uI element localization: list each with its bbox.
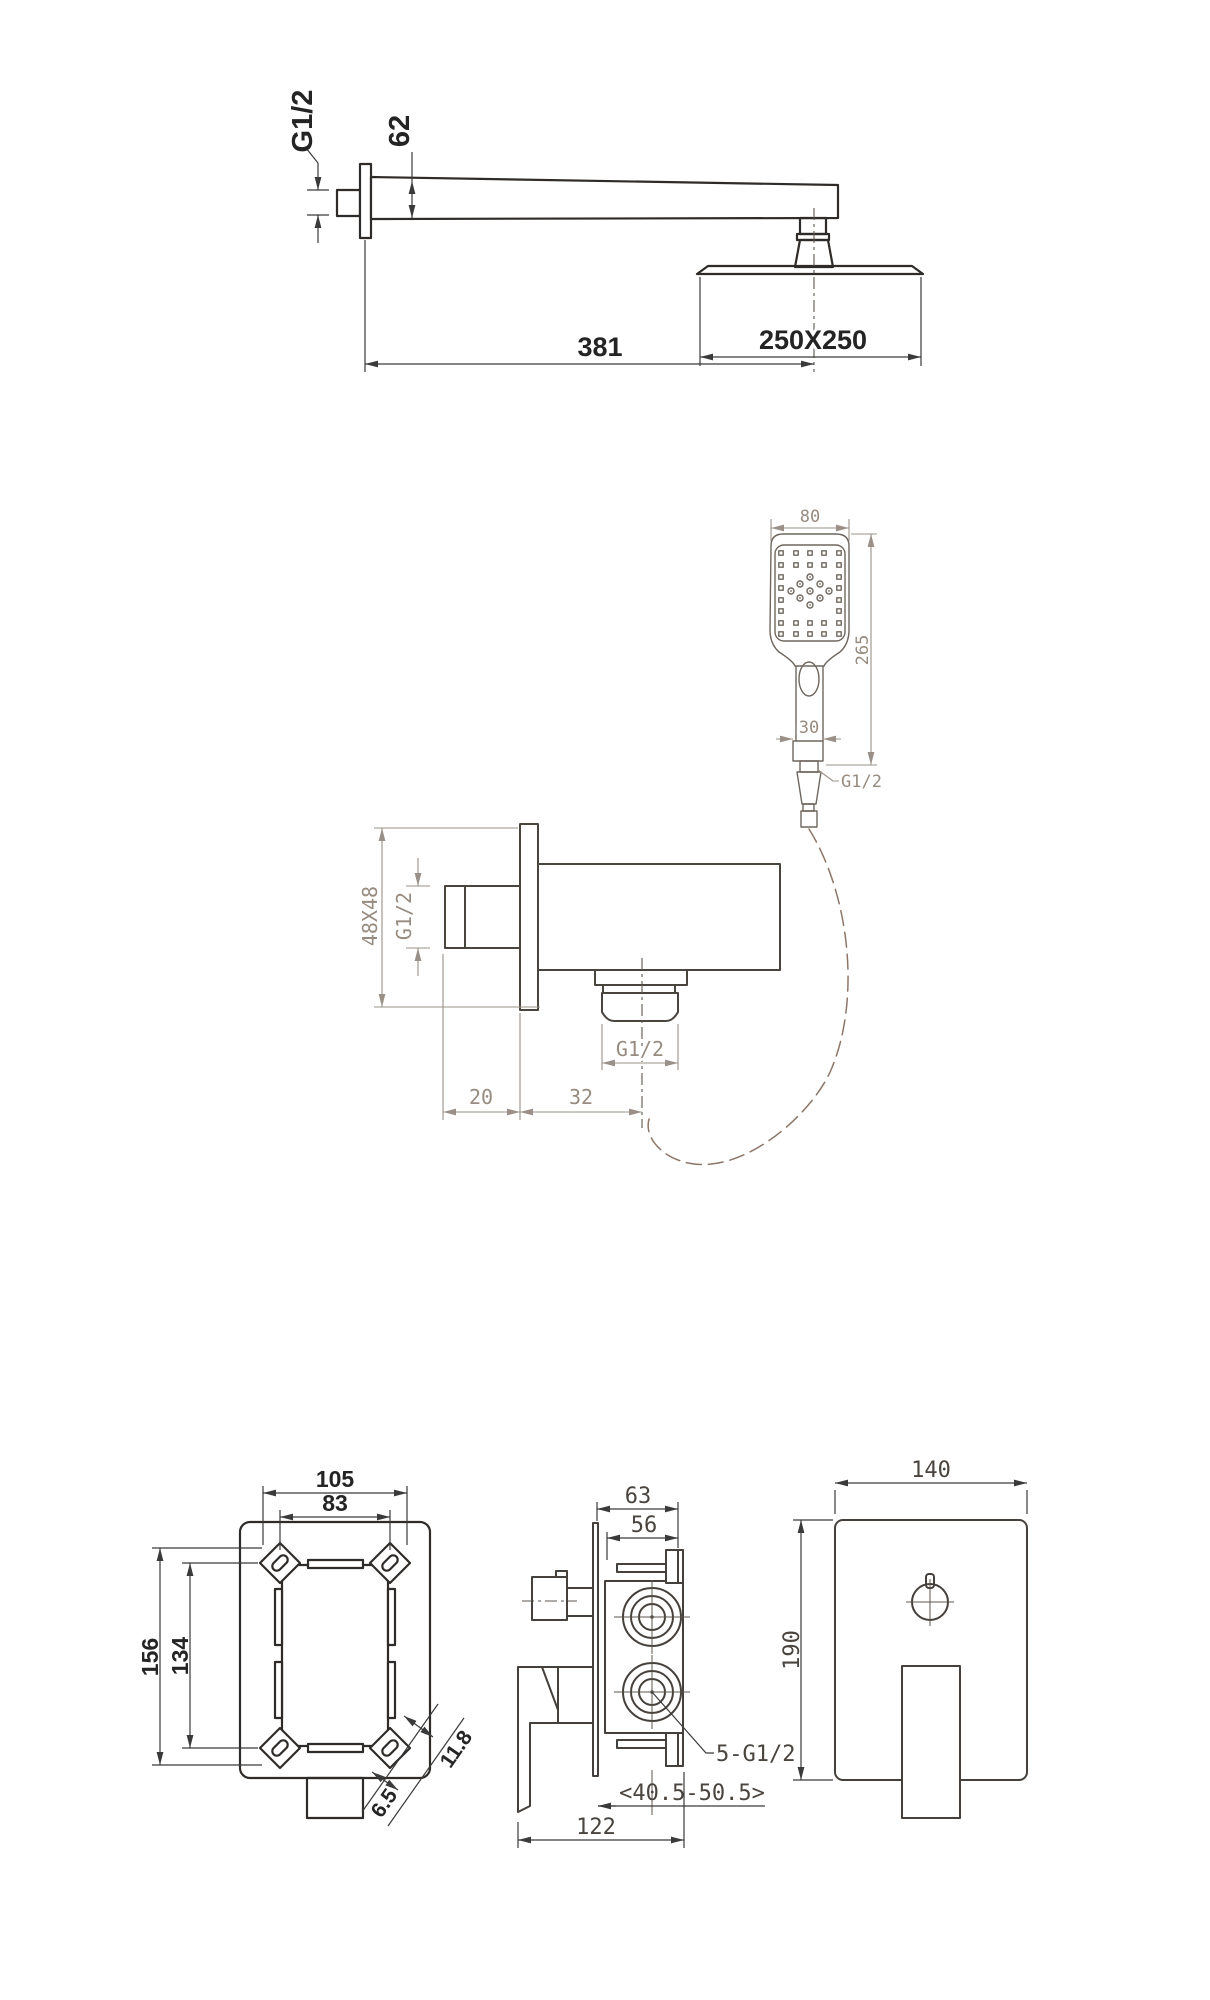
hose-nut: [801, 811, 817, 827]
box-inner-frame: [282, 1565, 388, 1746]
nozzle-dot: [799, 597, 801, 599]
outlet-step1: [595, 970, 687, 985]
nozzle-dot: [809, 604, 811, 606]
nozzle-square: [822, 551, 826, 555]
dim-outlet-plate-size: 48X48: [358, 886, 382, 946]
dim-arm-thread: G1/2: [287, 90, 319, 153]
valve-knob-side: [532, 1577, 567, 1620]
nozzle-square: [794, 563, 798, 567]
nozzle-square: [808, 563, 812, 567]
wall-outlet-elbow-drawing: 48X48 G1/2 G1/2 20 32: [358, 824, 780, 1128]
nozzle-square: [808, 621, 812, 625]
hand-shower-face: [775, 545, 845, 641]
nozzle-square: [837, 563, 841, 567]
handle-neck: [800, 761, 818, 772]
valve-wall-plate: [593, 1523, 598, 1776]
nozzle-dot: [828, 590, 830, 592]
label-valve-ports: 5-G1/2: [716, 1742, 795, 1767]
dim-handle-width: 30: [799, 718, 819, 738]
mixer-valve-side-view: 63 56 5-G1/2 <40.5-50.5> 122 190: [518, 1484, 833, 1848]
shower-arm: [371, 177, 838, 219]
dim-box-slot-width: 6.5: [367, 1784, 403, 1821]
dim-plate-width: 140: [911, 1458, 951, 1483]
nozzle-square: [794, 621, 798, 625]
valve-bottom-port: [666, 1733, 683, 1766]
nozzle-grid: [779, 551, 841, 636]
nozzle-square: [822, 632, 826, 636]
technical-drawing-page: G1/2 62 250X250 381 80: [0, 0, 1210, 2000]
nozzle-square: [808, 632, 812, 636]
dim-hand-width: 80: [800, 507, 820, 527]
nozzle-square: [794, 632, 798, 636]
dim-hand-length: 265: [853, 635, 873, 666]
outlet-nut: [602, 993, 678, 1021]
rough-in-box-drawing: 105 83 156 134 11.8 6.5: [137, 1466, 477, 1826]
dim-outlet-offset: 32: [569, 1085, 593, 1109]
nozzle-square: [779, 551, 783, 555]
nozzle-square: [808, 551, 812, 555]
dim-head-size: 250X250: [759, 325, 867, 355]
nozzle-square: [779, 621, 783, 625]
nozzle-dot: [790, 590, 792, 592]
nozzle-square: [779, 632, 783, 636]
nozzle-square: [779, 609, 783, 613]
hand-shower-drawing: 80 265 30 G1/2: [648, 507, 882, 1165]
lever-handle-side: [518, 1667, 558, 1812]
dim-outlet-thread-depth: 20: [469, 1085, 493, 1109]
nozzle-dot: [819, 597, 821, 599]
nozzle-dot: [799, 583, 801, 585]
dim-outlet-inlet-thread: G1/2: [392, 892, 416, 940]
nozzle-square: [779, 575, 783, 579]
outlet-inlet-stub: [445, 886, 520, 948]
dim-hand-thread: G1/2: [841, 772, 882, 792]
outlet-step2: [603, 985, 675, 993]
dim-box-hole-span-v: 134: [167, 1637, 193, 1676]
nozzle-square: [822, 621, 826, 625]
nozzle-dot: [819, 583, 821, 585]
lever-handle-front: [902, 1666, 960, 1818]
nozzle-square: [837, 575, 841, 579]
dim-valve-height: 190: [780, 1630, 805, 1670]
shower-set-drawing: G1/2 62 250X250 381 80: [0, 0, 1210, 2000]
dim-box-lug-span-v: 156: [137, 1638, 163, 1676]
dim-valve-depth-body: 56: [631, 1513, 658, 1538]
nozzle-dot: [809, 590, 811, 592]
nozzle-square: [837, 621, 841, 625]
mixer-valve-front-view: 140: [835, 1458, 1027, 1818]
nozzle-square: [837, 598, 841, 602]
box-bottom-stub: [307, 1778, 363, 1818]
nozzle-square: [779, 563, 783, 567]
dim-box-hole-span-h: 83: [322, 1490, 348, 1516]
dim-valve-depth-total: 63: [625, 1484, 652, 1509]
dim-outlet-outlet-thread: G1/2: [616, 1037, 664, 1061]
hose-nut-neck: [803, 804, 814, 811]
rain-shower-arm-drawing: G1/2 62 250X250 381: [287, 90, 923, 372]
dim-box-slot-length: 11.8: [436, 1726, 478, 1772]
nozzle-square: [837, 586, 841, 590]
dim-valve-wall-range: <40.5-50.5>: [619, 1781, 765, 1806]
outlet-body: [538, 864, 780, 970]
nozzle-square: [837, 551, 841, 555]
nozzle-square: [779, 598, 783, 602]
hose-cone: [797, 772, 821, 804]
outlet-wall-plate: [520, 824, 538, 1010]
nozzle-square: [794, 551, 798, 555]
dim-arm-length: 381: [577, 332, 622, 362]
nozzle-square: [779, 586, 783, 590]
lever-escutcheon: [558, 1667, 593, 1723]
nozzle-square: [822, 563, 826, 567]
dim-box-lug-span-h: 105: [316, 1466, 355, 1492]
valve-top-port: [666, 1550, 683, 1583]
dim-valve-width-total: 122: [576, 1815, 616, 1840]
nozzle-dot: [809, 576, 811, 578]
handle-base: [793, 741, 823, 761]
upper-port-circles: [614, 1580, 690, 1654]
arm-thread-stub: [337, 190, 360, 216]
valve-body: [605, 1581, 683, 1733]
nozzle-square: [837, 609, 841, 613]
nozzle-square: [837, 632, 841, 636]
arm-joint-nut: [800, 218, 826, 234]
arm-wall-flange: [360, 164, 371, 238]
dim-arm-height: 62: [384, 115, 416, 147]
hand-shower-button: [799, 662, 819, 696]
